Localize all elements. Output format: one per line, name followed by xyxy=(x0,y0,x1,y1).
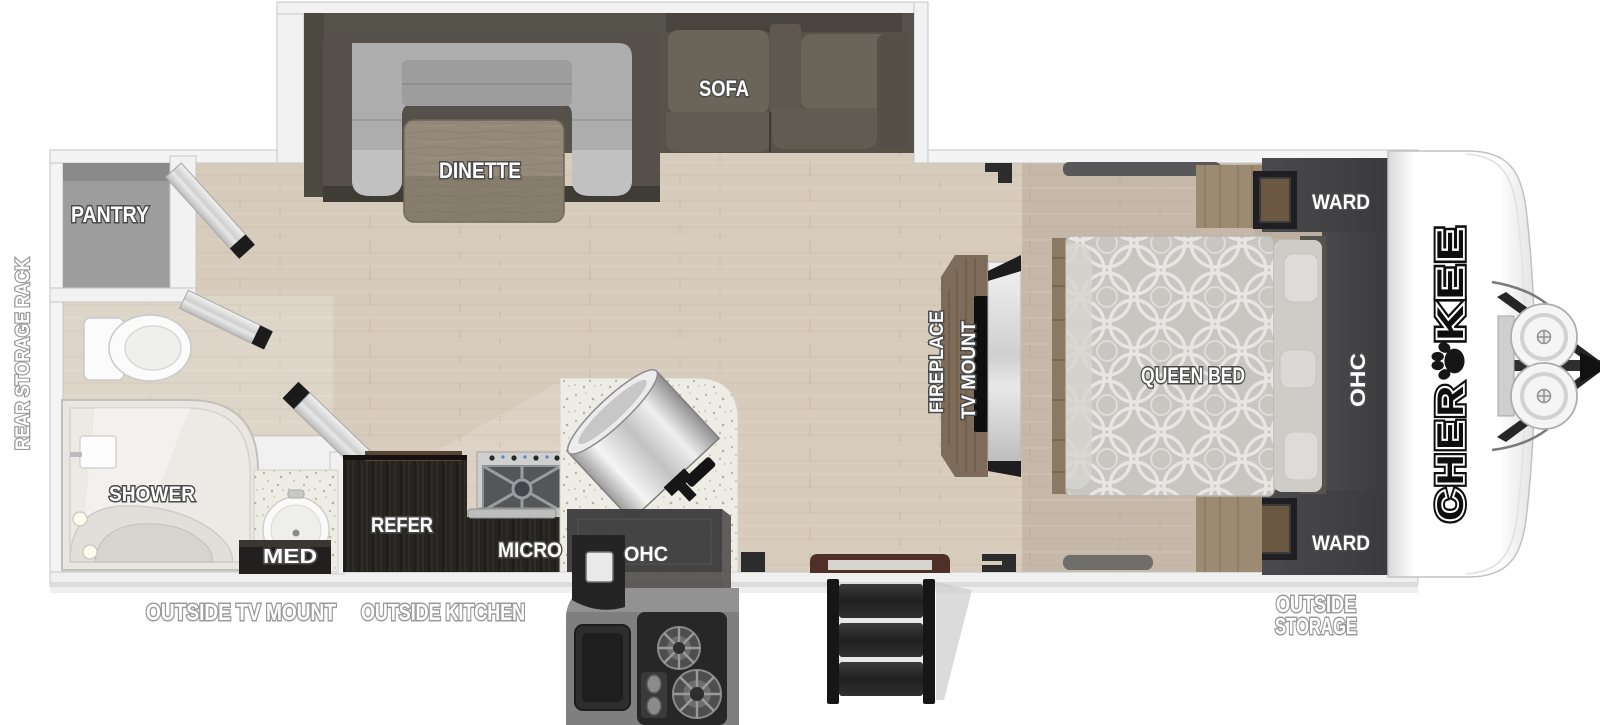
svg-text:TV MOUNT: TV MOUNT xyxy=(959,321,980,419)
svg-text:SHOWER: SHOWER xyxy=(109,483,195,506)
svg-text:OHC: OHC xyxy=(1347,353,1370,407)
svg-text:OHC: OHC xyxy=(624,543,668,566)
svg-text:OUTSIDE TV MOUNT: OUTSIDE TV MOUNT xyxy=(146,599,336,625)
svg-text:MED: MED xyxy=(263,546,317,568)
svg-text:KEE: KEE xyxy=(1430,223,1471,341)
svg-text:SOFA: SOFA xyxy=(699,76,749,101)
svg-text:OUTSIDE KITCHEN: OUTSIDE KITCHEN xyxy=(361,599,525,625)
svg-text:FIREPLACE: FIREPLACE xyxy=(927,311,948,413)
svg-text:MICRO: MICRO xyxy=(498,539,562,562)
svg-text:REFER: REFER xyxy=(371,514,433,537)
svg-text:DINETTE: DINETTE xyxy=(439,158,521,183)
svg-text:STORAGE: STORAGE xyxy=(1275,613,1357,639)
svg-text:QUEEN BED: QUEEN BED xyxy=(1141,363,1245,388)
svg-text:CHER: CHER xyxy=(1430,381,1471,521)
svg-text:PANTRY: PANTRY xyxy=(71,202,149,227)
svg-text:REAR STORAGE RACK: REAR STORAGE RACK xyxy=(13,258,34,450)
svg-text:WARD: WARD xyxy=(1312,191,1370,214)
svg-text:WARD: WARD xyxy=(1312,532,1370,555)
